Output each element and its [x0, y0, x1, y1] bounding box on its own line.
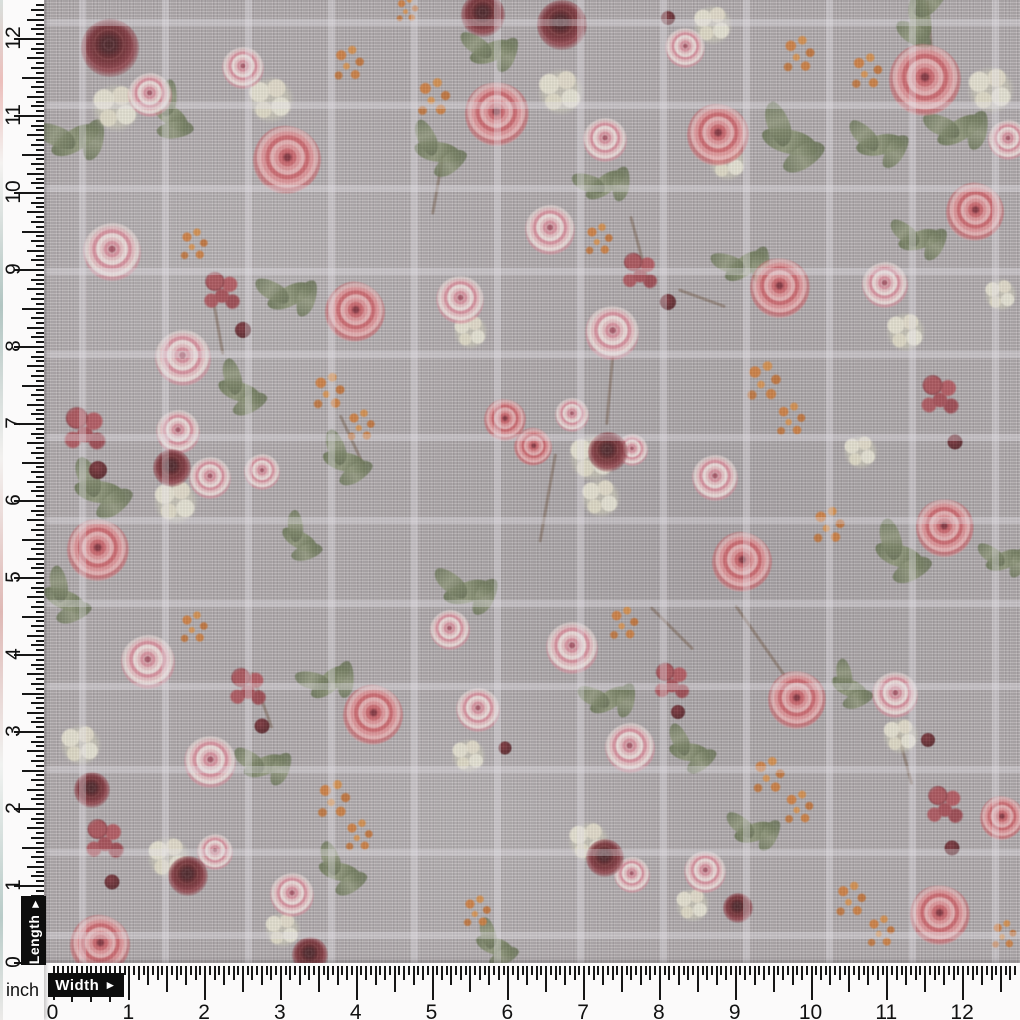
rose-pink	[583, 118, 627, 162]
tick-mark	[512, 966, 514, 975]
tick-mark	[536, 966, 538, 980]
tick-mark	[602, 966, 604, 985]
ruler-number: 6	[492, 1001, 522, 1020]
tick-mark	[986, 966, 988, 975]
tick-mark	[27, 481, 44, 483]
tick-mark	[128, 966, 130, 1000]
tick-mark	[948, 966, 950, 975]
leaf-spray	[586, 681, 633, 719]
tick-mark	[36, 283, 44, 285]
tick-mark	[792, 966, 794, 985]
width-label: Width	[55, 977, 99, 994]
rose-coral	[980, 796, 1020, 840]
tick-mark	[768, 966, 770, 975]
photo-edge-strip	[0, 0, 3, 1020]
ruler-number: 4	[341, 1001, 371, 1020]
tick-mark	[867, 966, 869, 985]
tick-mark	[36, 447, 44, 449]
tick-mark	[31, 664, 44, 666]
tick-mark	[31, 202, 44, 204]
tick-mark	[36, 399, 44, 401]
tick-mark	[36, 640, 44, 642]
tick-mark	[36, 495, 44, 497]
tick-mark	[413, 966, 415, 985]
tick-mark	[31, 760, 44, 762]
tick-mark	[31, 28, 44, 30]
rose-pink	[244, 454, 280, 490]
tick-mark	[36, 659, 44, 661]
tick-mark	[36, 543, 44, 545]
leaf-spray	[855, 131, 906, 159]
tick-mark	[583, 966, 585, 1000]
rose-pink	[222, 47, 264, 89]
tick-mark	[578, 966, 580, 975]
tick-mark	[280, 966, 282, 1000]
leaf-spray	[668, 740, 712, 765]
tick-mark	[394, 966, 396, 992]
up-arrow-icon: ►	[28, 897, 42, 909]
tick-mark	[36, 476, 44, 478]
tick-mark	[27, 173, 44, 175]
tick-mark	[635, 966, 637, 975]
tick-mark	[27, 712, 44, 714]
rose-maroon	[74, 772, 110, 808]
right-arrow-icon: ►	[104, 978, 116, 992]
ruler-number: 1	[113, 1001, 143, 1020]
tick-mark	[31, 182, 44, 184]
tick-mark	[31, 741, 44, 743]
tick-mark	[607, 966, 609, 975]
tick-mark	[612, 966, 614, 980]
tick-mark	[36, 62, 44, 64]
tick-mark	[36, 486, 44, 488]
tick-mark	[31, 606, 44, 608]
tick-mark	[256, 966, 258, 975]
tick-mark	[36, 206, 44, 208]
rose-pink	[579, 300, 645, 366]
tick-mark	[22, 462, 44, 464]
cream-flowers	[533, 65, 587, 119]
tick-mark	[31, 125, 44, 127]
floral-print	[44, 0, 1020, 963]
rose-maroon	[533, 0, 591, 54]
tick-mark	[1014, 966, 1016, 975]
tick-mark	[31, 336, 44, 338]
tick-mark	[180, 966, 182, 975]
leaf-spray	[215, 375, 265, 409]
tick-mark	[882, 966, 884, 975]
tick-mark	[204, 966, 206, 1000]
dark-berry	[661, 11, 675, 25]
tick-mark	[664, 966, 666, 975]
tick-mark	[488, 966, 490, 985]
tick-mark	[261, 966, 263, 985]
tick-mark	[36, 534, 44, 536]
ruler-number: 7	[1, 410, 27, 436]
tick-mark	[569, 966, 571, 975]
tick-mark	[36, 226, 44, 228]
rose-maroon	[81, 19, 139, 77]
tick-mark	[27, 327, 44, 329]
tick-mark	[678, 966, 680, 985]
tick-mark	[209, 966, 211, 975]
tick-mark	[744, 966, 746, 980]
tick-mark	[702, 966, 704, 975]
tick-mark	[522, 966, 524, 975]
tick-mark	[27, 211, 44, 213]
tick-mark	[223, 966, 225, 985]
tick-mark	[171, 966, 173, 975]
rose-coral	[889, 44, 961, 116]
leaf-spray	[441, 575, 495, 608]
dark-berry	[948, 435, 963, 450]
tick-mark	[36, 81, 44, 83]
tick-mark	[356, 966, 358, 1000]
tick-mark	[31, 259, 44, 261]
leaf-spray	[896, 225, 943, 254]
tick-mark	[919, 966, 921, 975]
tick-mark	[455, 966, 457, 975]
tick-mark	[796, 966, 798, 975]
tick-mark	[27, 827, 44, 829]
tick-mark	[706, 966, 708, 980]
tick-mark	[36, 120, 44, 122]
berry-cluster	[58, 403, 113, 458]
tick-mark	[27, 673, 44, 675]
tick-mark	[659, 966, 661, 1000]
rose-pink	[555, 398, 589, 432]
tick-mark	[147, 966, 149, 985]
tick-mark	[36, 293, 44, 295]
rose-pink	[868, 668, 921, 721]
ruler-number: 4	[1, 641, 27, 667]
rose-pink	[270, 873, 314, 917]
tick-mark	[910, 966, 912, 975]
tick-mark	[545, 966, 547, 992]
dark-berry	[660, 294, 676, 310]
tick-mark	[360, 966, 362, 975]
tick-mark	[31, 452, 44, 454]
tick-mark	[872, 966, 874, 975]
tick-mark	[27, 19, 44, 21]
tick-mark	[233, 966, 235, 980]
tick-mark	[27, 134, 44, 136]
rose-pink	[456, 688, 500, 732]
tick-mark	[720, 966, 722, 975]
tick-mark	[901, 966, 903, 975]
tick-mark	[540, 966, 542, 975]
tick-mark	[36, 264, 44, 266]
tick-mark	[22, 385, 44, 387]
dark-berry	[921, 733, 935, 747]
orange-flowers	[846, 50, 891, 95]
tick-mark	[36, 678, 44, 680]
rose-pink	[180, 732, 240, 792]
tick-mark	[465, 966, 467, 975]
tick-mark	[526, 966, 528, 985]
tick-mark	[36, 601, 44, 603]
tick-mark	[365, 966, 367, 980]
tick-mark	[36, 322, 44, 324]
tick-mark	[143, 966, 145, 975]
tick-mark	[332, 966, 334, 975]
leaf-spray	[316, 857, 363, 886]
tick-mark	[22, 770, 44, 772]
tick-mark	[157, 966, 159, 980]
orange-flowers	[175, 608, 215, 648]
tick-mark	[31, 510, 44, 512]
tick-mark	[308, 966, 310, 980]
ruler-number: 6	[1, 487, 27, 513]
tick-mark	[905, 966, 907, 985]
tick-mark	[27, 365, 44, 367]
tick-mark	[630, 966, 632, 980]
tick-mark	[777, 966, 779, 975]
tick-mark	[36, 216, 44, 218]
tick-mark	[398, 966, 400, 975]
tick-mark	[36, 158, 44, 160]
tick-mark	[36, 418, 44, 420]
tick-mark	[36, 620, 44, 622]
tick-mark	[36, 813, 44, 815]
tick-mark	[266, 966, 268, 975]
orange-flowers	[580, 220, 620, 260]
rose-coral	[458, 75, 536, 153]
tick-mark	[739, 966, 741, 975]
tick-mark	[27, 442, 44, 444]
tick-mark	[962, 966, 964, 1000]
fabric-photo	[44, 0, 1020, 963]
tick-mark	[673, 966, 675, 975]
tick-mark	[839, 966, 841, 980]
berry-cluster	[649, 659, 695, 705]
tick-mark	[36, 101, 44, 103]
ruler-number: 7	[568, 1001, 598, 1020]
tick-mark	[251, 966, 253, 980]
length-label-box: Length ►	[21, 896, 46, 965]
tick-mark	[668, 966, 670, 980]
tick-mark	[31, 433, 44, 435]
tick-mark	[242, 966, 244, 992]
length-label: Length	[26, 914, 42, 964]
tick-mark	[36, 774, 44, 776]
rose-maroon	[588, 432, 628, 472]
tick-mark	[503, 966, 505, 975]
tick-mark	[697, 966, 699, 992]
tick-mark	[36, 668, 44, 670]
tick-mark	[36, 360, 44, 362]
rose-pink	[83, 223, 141, 281]
tick-mark	[36, 707, 44, 709]
tick-mark	[36, 505, 44, 507]
stem	[650, 606, 694, 650]
rose-maroon	[153, 449, 191, 487]
ruler-number: 8	[644, 1001, 674, 1020]
ruler-number: 5	[1, 564, 27, 590]
tick-mark	[450, 966, 452, 985]
tick-mark	[27, 750, 44, 752]
rose-coral	[707, 527, 777, 597]
tick-mark	[218, 966, 220, 975]
tick-mark	[31, 48, 44, 50]
tick-mark	[285, 966, 287, 975]
tick-mark	[36, 187, 44, 189]
tick-mark	[31, 356, 44, 358]
tick-mark	[957, 966, 959, 975]
tick-mark	[341, 966, 343, 975]
tick-mark	[327, 966, 329, 980]
tick-mark	[36, 245, 44, 247]
width-label-box: Width►	[48, 973, 124, 997]
fabric-product-photo: 0123456789101112 Width► 0123456789101112…	[0, 0, 1020, 1020]
tick-mark	[498, 966, 500, 980]
tick-mark	[36, 91, 44, 93]
tick-mark	[626, 966, 628, 975]
stem	[735, 604, 786, 675]
tick-mark	[896, 966, 898, 980]
tick-mark	[36, 514, 44, 516]
tick-mark	[531, 966, 533, 975]
tick-mark	[36, 437, 44, 439]
tick-mark	[27, 288, 44, 290]
tick-mark	[185, 966, 187, 985]
tick-mark	[417, 966, 419, 975]
tick-mark	[36, 380, 44, 382]
tick-mark	[730, 966, 732, 975]
tick-mark	[616, 966, 618, 975]
tick-mark	[27, 596, 44, 598]
tick-mark	[36, 351, 44, 353]
tick-mark	[806, 966, 808, 975]
dark-berry	[89, 461, 107, 479]
tick-mark	[36, 630, 44, 632]
orange-flowers	[411, 74, 459, 122]
left-ruler-length: 0123456789101112 Length ►	[0, 0, 44, 1020]
berry-cluster	[617, 249, 663, 295]
rose-pink	[119, 633, 178, 692]
tick-mark	[820, 966, 822, 980]
tick-mark	[384, 966, 386, 980]
tick-mark	[22, 847, 44, 849]
tick-mark	[133, 966, 135, 975]
rose-coral	[939, 176, 1010, 247]
tick-mark	[31, 837, 44, 839]
tick-mark	[31, 721, 44, 723]
tick-mark	[36, 457, 44, 459]
tick-mark	[36, 851, 44, 853]
tick-mark	[555, 966, 557, 980]
tick-mark	[848, 966, 850, 992]
orange-flowers	[777, 32, 823, 78]
tick-mark	[237, 966, 239, 975]
tick-mark	[711, 966, 713, 975]
tick-mark	[22, 539, 44, 541]
tick-mark	[323, 966, 325, 975]
rose-coral	[766, 669, 829, 732]
rose-pink	[151, 326, 216, 391]
tick-mark	[138, 966, 140, 980]
tick-mark	[36, 341, 44, 343]
tick-mark	[749, 966, 751, 975]
tick-mark	[649, 966, 651, 980]
tick-mark	[36, 553, 44, 555]
tick-mark	[943, 966, 945, 985]
tick-mark	[31, 317, 44, 319]
tick-mark	[863, 966, 865, 975]
tick-mark	[304, 966, 306, 975]
tick-mark	[929, 966, 931, 975]
rose-coral	[65, 910, 135, 963]
tick-mark	[36, 880, 44, 882]
rose-pink	[546, 622, 598, 674]
tick-mark	[31, 644, 44, 646]
tick-mark	[337, 966, 339, 985]
tick-mark	[31, 240, 44, 242]
tick-mark	[36, 43, 44, 45]
tick-mark	[289, 966, 291, 980]
tick-mark	[825, 966, 827, 975]
dark-berry	[499, 742, 512, 755]
tick-mark	[886, 966, 888, 1000]
tick-mark	[469, 966, 471, 992]
orange-flowers	[458, 892, 498, 932]
tick-mark	[991, 966, 993, 980]
rose-maroon	[292, 937, 328, 963]
tick-mark	[31, 548, 44, 550]
ruler-number: 9	[1, 256, 27, 282]
rose-pink	[692, 455, 738, 501]
tick-mark	[299, 966, 301, 985]
tick-mark	[161, 966, 163, 975]
tick-mark	[22, 693, 44, 695]
tick-mark	[853, 966, 855, 975]
tick-mark	[195, 966, 197, 980]
tick-mark	[36, 591, 44, 593]
tick-mark	[22, 154, 44, 156]
orange-flowers	[392, 0, 424, 26]
tick-mark	[891, 966, 893, 975]
stem	[539, 453, 557, 542]
tick-mark	[27, 96, 44, 98]
tick-mark	[725, 966, 727, 980]
tick-mark	[36, 14, 44, 16]
tick-mark	[559, 966, 561, 975]
tick-mark	[36, 842, 44, 844]
tick-mark	[31, 875, 44, 877]
tick-mark	[844, 966, 846, 975]
tick-mark	[22, 231, 44, 233]
tick-mark	[318, 966, 320, 992]
tick-mark	[36, 717, 44, 719]
tick-mark	[834, 966, 836, 975]
tick-mark	[36, 582, 44, 584]
tick-mark	[36, 794, 44, 796]
leaf-spray	[759, 123, 821, 162]
tick-mark	[27, 519, 44, 521]
tick-mark	[683, 966, 685, 975]
tick-mark	[379, 966, 381, 975]
dark-berry	[235, 322, 251, 338]
orange-flowers	[779, 787, 821, 829]
orange-flowers	[342, 406, 382, 446]
berry-cluster	[198, 268, 246, 316]
tick-mark	[36, 255, 44, 257]
leaf-spray	[44, 582, 90, 619]
tick-mark	[31, 9, 44, 11]
ruler-number: 2	[189, 1001, 219, 1020]
leaf-spray	[72, 477, 127, 508]
tick-mark	[36, 303, 44, 305]
